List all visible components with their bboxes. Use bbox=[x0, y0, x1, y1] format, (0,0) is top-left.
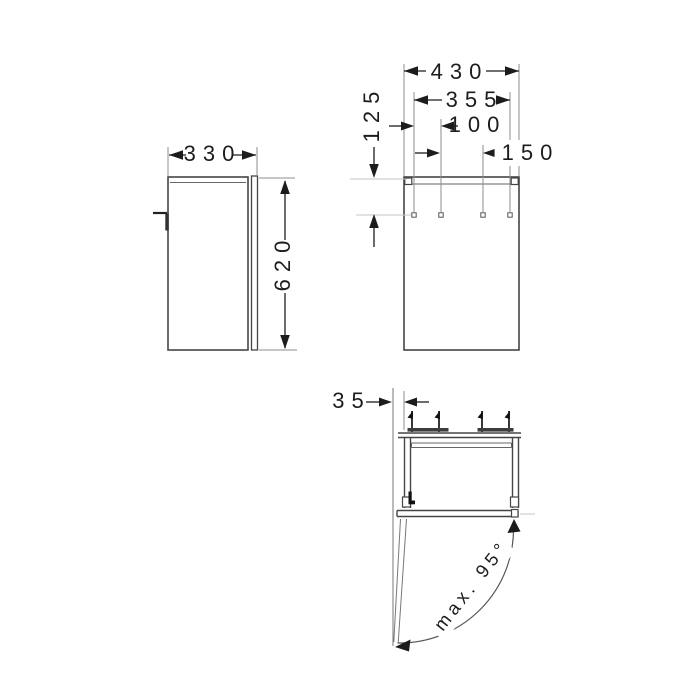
dim-label-front-width: 430 bbox=[424, 61, 489, 83]
mounting-hole bbox=[508, 213, 512, 217]
arrowhead-right bbox=[401, 122, 414, 131]
plan-mount-rail-left bbox=[408, 428, 449, 432]
plan-door-open-lines bbox=[394, 519, 407, 643]
arrowhead-left bbox=[404, 398, 417, 407]
mounting-hole bbox=[481, 213, 485, 217]
plan-door-closed bbox=[397, 510, 518, 518]
arrowhead-left bbox=[404, 66, 418, 76]
mounting-hole bbox=[439, 213, 443, 217]
dim-label-hole-left: 100 bbox=[442, 114, 507, 136]
front-view bbox=[404, 177, 519, 350]
arrowhead-right bbox=[379, 398, 392, 407]
drawing-linework bbox=[0, 0, 700, 700]
dim-plan-clearance-35 bbox=[366, 398, 429, 407]
plan-right-wall-end-block bbox=[511, 497, 519, 507]
dim-label-clearance: 35 bbox=[325, 390, 371, 412]
technical-drawing-page: 430 355 100 150 125 330 620 35 max. 95° bbox=[0, 0, 700, 700]
dim-label-top-offset: 125 bbox=[361, 85, 383, 150]
arc-arrowhead-top bbox=[508, 519, 521, 533]
side-view-mount-bracket bbox=[165, 214, 168, 231]
dim-front-hole-mid-150 bbox=[415, 149, 505, 158]
plan-mount-rail-right bbox=[478, 428, 514, 432]
plan-door-hinge bbox=[409, 492, 416, 505]
dim-front-top-offset-125 bbox=[369, 147, 379, 247]
dim-label-side-width: 330 bbox=[177, 143, 242, 165]
mounting-hole bbox=[412, 213, 416, 217]
dim-label-hole-mid: 150 bbox=[495, 140, 560, 166]
arrowhead-up bbox=[280, 180, 290, 194]
side-view bbox=[153, 176, 258, 350]
arrowhead-left bbox=[414, 95, 428, 105]
arrowhead-right bbox=[242, 150, 256, 160]
front-view-cabinet-body bbox=[404, 177, 519, 350]
arrowhead-right bbox=[427, 149, 440, 158]
dim-label-mount-span: 355 bbox=[439, 89, 504, 111]
side-view-door-panel bbox=[252, 176, 258, 350]
arrowhead-down bbox=[280, 335, 290, 349]
side-view-cabinet-body bbox=[168, 177, 248, 350]
dim-label-side-height: 620 bbox=[272, 234, 294, 299]
arrowhead-right bbox=[505, 66, 519, 76]
arrowhead-up bbox=[369, 214, 379, 228]
arrowhead-down bbox=[369, 164, 379, 178]
arc-arrowhead-bottom bbox=[395, 640, 411, 652]
front-view-corner-bracket-right bbox=[511, 178, 518, 185]
